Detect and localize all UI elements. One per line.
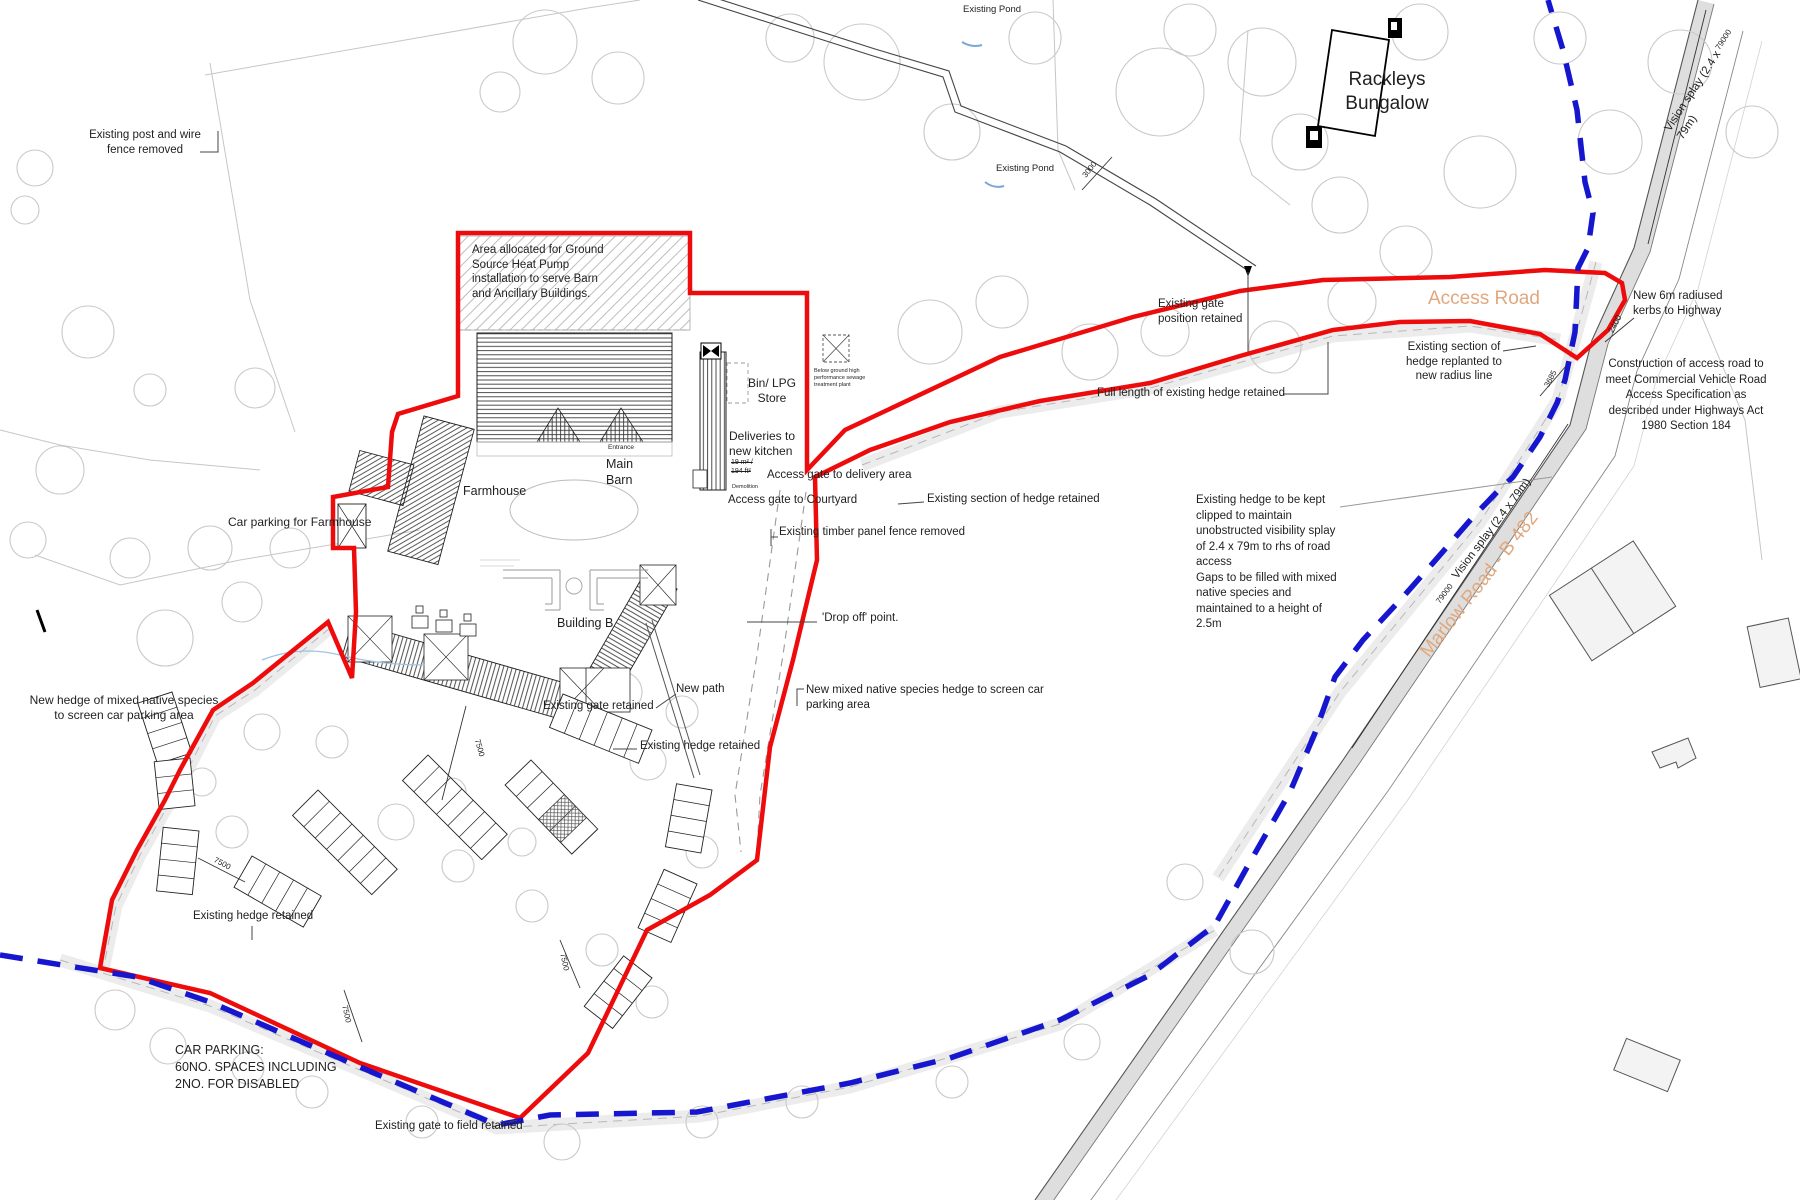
courtyard bbox=[480, 480, 648, 610]
label-gate-retained: Existing gate retained bbox=[543, 699, 654, 714]
offsite-buildings bbox=[1549, 541, 1800, 1092]
label-sewage-plant: Below ground high performance sewage tre… bbox=[814, 368, 865, 389]
label-gate-field: Existing gate to field retained bbox=[375, 1119, 523, 1134]
label-gate-courtyard: Access gate to Courtyard bbox=[728, 493, 857, 508]
existing-track bbox=[698, 0, 1256, 277]
label-hedge-section-retained: Existing section of hedge retained bbox=[927, 492, 1100, 507]
label-deliveries: Deliveries to new kitchen bbox=[729, 429, 795, 460]
label-area-sqm: 19 m² / 194 ft² bbox=[731, 459, 753, 477]
farmhouse-building bbox=[337, 402, 475, 564]
label-full-length-hedge: Full length of existing hedge retained bbox=[1097, 386, 1285, 401]
label-construction-note: Construction of access road to meet Comm… bbox=[1598, 357, 1774, 435]
label-pond-1: Existing Pond bbox=[963, 4, 1021, 16]
label-new-path: New path bbox=[676, 682, 725, 697]
kitchen-wing bbox=[693, 343, 726, 490]
label-hedge-replanted: Existing section of hedge replanted to n… bbox=[1398, 340, 1510, 384]
label-hedge-clipped-note: Existing hedge to be kept clipped to mai… bbox=[1196, 493, 1337, 633]
label-car-parking-farmhouse: Car parking for Farmhouse bbox=[228, 515, 371, 530]
label-farmhouse: Farmhouse bbox=[463, 483, 526, 499]
site-plan-drawing bbox=[0, 0, 1800, 1200]
gate-mark bbox=[37, 610, 45, 632]
sewage-treatment-plant bbox=[823, 335, 849, 362]
label-new-mixed-hedge: New mixed native species hedge to screen… bbox=[806, 683, 1044, 712]
label-pond-2: Existing Pond bbox=[996, 163, 1054, 175]
label-rackleys-bungalow: Rackleys Bungalow bbox=[1337, 68, 1437, 117]
label-timber-fence: Existing timber panel fence removed bbox=[779, 525, 965, 540]
trees bbox=[10, 4, 1778, 1160]
label-gshp-area: Area allocated for Ground Source Heat Pu… bbox=[472, 243, 604, 302]
label-car-parking-note: CAR PARKING: 60NO. SPACES INCLUDING 2NO.… bbox=[175, 1042, 337, 1093]
label-new-hedge-west: New hedge of mixed native species to scr… bbox=[20, 693, 228, 724]
site-plan-page: Existing post and wire fence removed Exi… bbox=[0, 0, 1800, 1200]
label-hedge-retained-mid: Existing hedge retained bbox=[640, 739, 760, 754]
main-barn bbox=[477, 333, 672, 456]
label-entrance: Entrance bbox=[608, 444, 634, 452]
label-bin-lpg-store: Bin/ LPG Store bbox=[741, 376, 803, 407]
label-drop-off: 'Drop off' point. bbox=[822, 611, 898, 626]
label-access-road: Access Road bbox=[1428, 287, 1540, 311]
label-demolition: Demolition bbox=[732, 484, 758, 491]
label-hedge-retained-low: Existing hedge retained bbox=[193, 909, 313, 924]
label-gate-delivery: Access gate to delivery area bbox=[767, 468, 911, 483]
label-post-wire-fence: Existing post and wire fence removed bbox=[85, 128, 205, 157]
label-building-b: Building B bbox=[557, 615, 613, 631]
site-boundary-line bbox=[100, 233, 1625, 1118]
label-new-kerbs: New 6m radiused kerbs to Highway bbox=[1633, 289, 1722, 318]
label-gate-position: Existing gate position retained bbox=[1158, 297, 1242, 326]
label-main-barn: Main Barn bbox=[606, 456, 633, 488]
